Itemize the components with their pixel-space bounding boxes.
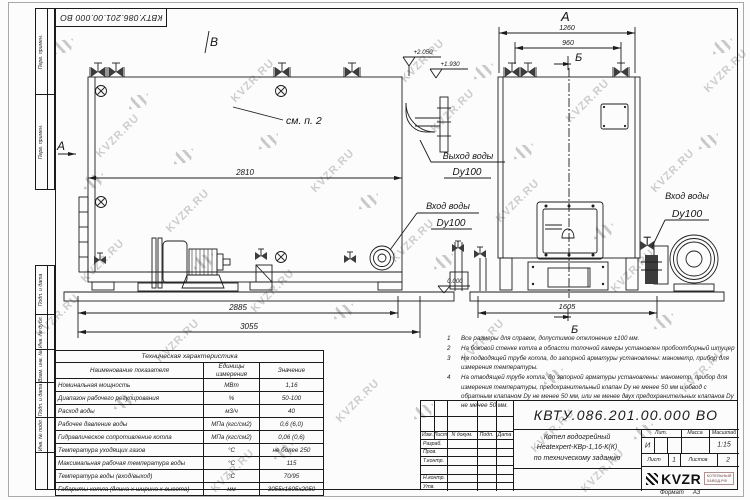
inlet-water-label-side: Вход воды [426, 201, 470, 211]
product-name-line2: Heatexpert-КВр-1,16-К(К) [537, 443, 617, 454]
inlet-water-label-front: Вход воды [665, 191, 709, 201]
elevation-upper-label: +1.930 [440, 61, 460, 68]
spec-name: Максимальная рабочая температура воды [56, 457, 204, 470]
table-row: Расход водым3/ч40 [56, 405, 324, 418]
pipe-labels: Выход воды Dy100 Вход воды Dy100 Вход во… [390, 140, 709, 250]
flue-outlet [406, 97, 451, 152]
blower-fan [654, 235, 718, 291]
spec-col-value: Значение [260, 363, 324, 379]
kvzr-logo-icon [646, 473, 658, 485]
spec-units: °С [204, 470, 260, 483]
note-item: 2На боковой стенке котла в области топоч… [447, 344, 739, 353]
note-text: На боковой стенке котла в области топочн… [461, 344, 735, 353]
sheet-label: Лист [647, 457, 660, 463]
dim-1260-label: 1260 [559, 25, 575, 32]
see-note-callout: см. п. 2 [286, 115, 322, 127]
spec-value: 0,6 (6,0) [260, 418, 324, 431]
spec-col-name: Наименование показателя [56, 363, 204, 379]
section-label-a-side: А [56, 139, 65, 153]
spec-value: 3055х1605х2050 [260, 483, 324, 496]
elevation-zero-label: 0.000 [447, 278, 463, 285]
safety-valve-icon [274, 63, 290, 77]
product-name: Котел водогрейный Heatexpert-КВр-1,16-К(… [513, 429, 641, 468]
rev-col-podp: Подп. [480, 432, 494, 438]
spec-name: Расход воды [56, 405, 204, 418]
outlet-water-label: Выход воды [443, 151, 494, 161]
drain-valve-icon [94, 253, 106, 264]
note-item: 1Все размеры для справок, допустимое отк… [447, 334, 739, 343]
view-label-v: В [210, 35, 218, 49]
note-text: Все размеры для справок, допустимое откл… [461, 334, 639, 343]
spec-units: % [204, 392, 260, 405]
rev-col-ndoc: N докум. [452, 432, 473, 438]
spec-value: 70/95 [260, 470, 324, 483]
spec-col-units: Единицы измерения [204, 363, 260, 379]
view-label-a-front: А [560, 9, 570, 24]
safety-valve-icon [504, 63, 520, 77]
safety-valve-icon [108, 63, 124, 77]
spec-name: Температура воды (вход/выход) [56, 470, 204, 483]
sign-nkontr: Н.контр. [423, 475, 445, 481]
spec-units: МПа (кгс/см2) [204, 431, 260, 444]
scale-label: Масштаб [712, 430, 736, 436]
sheet-value: 1 [672, 456, 676, 463]
title-block: Изм. Лист N докум. Подп. Дата Разраб. Пр… [420, 400, 738, 490]
safety-valve-icon [90, 63, 106, 77]
table-row: Гидравлическое сопротивление котлаМПа (к… [56, 431, 324, 444]
drawing-sheet: KVZR.RU KVZR.RU KVZR.RU KVZR.RU KVZR.RU … [0, 0, 750, 500]
table-row: Температура воды (вход/выход)°С70/95 [56, 470, 324, 483]
drain-valve-icon [255, 249, 267, 260]
lifting-lug-icon [96, 86, 107, 97]
dim-2810-label: 2810 [235, 168, 254, 177]
spec-name: Номинальная мощность [56, 379, 204, 392]
safety-valve-icon [613, 63, 629, 77]
mass-label: Масса [687, 430, 702, 436]
section-label-b-top: Б [575, 52, 582, 64]
sign-razrab: Разраб. [423, 441, 442, 447]
sheets-label: Листов [689, 457, 708, 463]
format-word: Формат [660, 490, 684, 496]
format-value: А3 [693, 490, 700, 496]
sheets-value: 2 [726, 456, 730, 463]
pump-unit [138, 238, 238, 291]
spec-value: 115 [260, 457, 324, 470]
spec-name: Диапазон рабочего регулирования [56, 392, 204, 405]
peephole [601, 104, 628, 129]
kvzr-logo-sub2: ЗАВОД.РФ [707, 479, 727, 483]
table-row: Номинальная мощностьМВт1,16 [56, 379, 324, 392]
spec-name: Температура уходящих газов [56, 444, 204, 457]
note-number: 1 [447, 334, 461, 343]
note-text: На подводящей трубе котла, до запорной а… [461, 354, 739, 373]
spec-value: 0,06 (0,6) [260, 431, 324, 444]
outlet-dn-label: Dy100 [453, 167, 482, 178]
rev-col-data: Дата [498, 432, 512, 438]
spec-units: м3/ч [204, 405, 260, 418]
company-logo: KVZR КОТЕЛЬНЫЙ ЗАВОД.РФ [641, 466, 739, 491]
sign-tkontr: Т.контр. [423, 458, 444, 464]
spec-value: 40 [260, 405, 324, 418]
table-row: Рабочее давление водыМПа (кгс/см2)0,6 (6… [56, 418, 324, 431]
spec-table: Техническая характеристика Наименование … [55, 350, 324, 496]
table-row: Температура уходящих газов°Сне более 250 [56, 444, 324, 457]
spec-units: МПа (кгс/см2) [204, 418, 260, 431]
side-view [79, 63, 468, 291]
table-row: Диапазон рабочего регулирования%50-100 [56, 392, 324, 405]
rev-col-list: Лист [434, 432, 447, 438]
front-view [474, 63, 718, 298]
spec-value: не более 250 [260, 444, 324, 457]
inlet-dn-label-side: Dy100 [437, 218, 466, 229]
spec-value: 1,16 [260, 379, 324, 392]
format-label: ФорматА3 [660, 490, 700, 496]
furnace-door [537, 202, 603, 259]
safety-valve-icon [344, 63, 360, 77]
scale-value: 1:15 [717, 442, 731, 449]
lifting-lug-icon [96, 197, 107, 208]
product-name-line1: Котел водогрейный [544, 433, 611, 444]
spec-units: мм [204, 483, 260, 496]
inlet-dn-label-front: Dy100 [672, 208, 703, 220]
spec-name: Рабочее давление воды [56, 418, 204, 431]
spec-name: Гидравлическое сопротивление котла [56, 431, 204, 444]
ground-line [64, 292, 724, 301]
dim-2885-label: 2885 [228, 303, 247, 312]
dim-1605-label: 1605 [559, 302, 577, 311]
spec-name: Габариты котла (длина х ширина х высота) [56, 483, 204, 496]
note-item: 3На подводящей трубе котла, до запорной … [447, 354, 739, 373]
dim-960-label: 960 [562, 40, 574, 47]
note-number: 3 [447, 354, 461, 373]
spec-units: °С [204, 457, 260, 470]
lit-label: Лит. [655, 430, 667, 436]
kvzr-logo-text: KVZR [661, 471, 701, 487]
spec-units: МВт [204, 379, 260, 392]
table-row: Габариты котла (длина х ширина х высота)… [56, 483, 324, 496]
note-number: 2 [447, 344, 461, 353]
doc-number: КВТУ.086.201.00.000 ВО [513, 401, 739, 429]
lifting-lug-icon [276, 86, 287, 97]
spec-value: 50-100 [260, 392, 324, 405]
table-row: Максимальная рабочая температура воды°С1… [56, 457, 324, 470]
lifting-lug-icon [276, 252, 287, 263]
elevation-top-label: +2.050 [413, 49, 433, 56]
drain-valve-icon [344, 252, 356, 263]
spec-units: °С [204, 444, 260, 457]
lit-value: И [645, 441, 650, 450]
safety-valve-icon [520, 63, 536, 77]
spec-table-title: Техническая характеристика [56, 351, 324, 363]
kvzr-logo-subtext: КОТЕЛЬНЫЙ ЗАВОД.РФ [704, 472, 734, 485]
product-name-line3: по техническому заданию [534, 454, 621, 465]
inlet-valve-assembly [640, 237, 662, 284]
drain-valve-icon [474, 247, 486, 258]
sign-prov: Пров. [423, 449, 437, 455]
kvzr-logo-sub1: КОТЕЛЬНЫЙ [707, 474, 732, 478]
sign-utv: Утв. [423, 484, 435, 490]
rev-col-izm: Изм. [422, 432, 433, 438]
dim-3055-label: 3055 [240, 322, 258, 331]
